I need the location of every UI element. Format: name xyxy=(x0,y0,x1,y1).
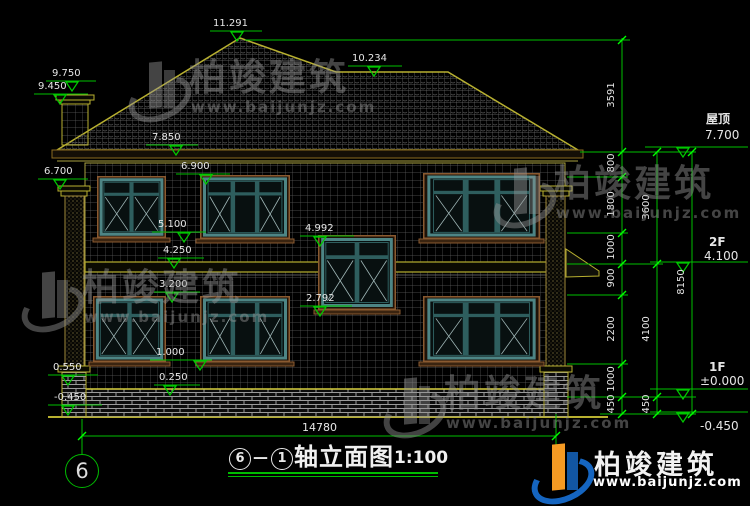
level-ridge: 10.234 xyxy=(352,54,387,64)
title-dash: — xyxy=(253,452,268,462)
title-underline-1 xyxy=(228,472,438,474)
baijun-logo-icon xyxy=(536,440,590,498)
level-peak: 11.291 xyxy=(213,19,248,29)
baijun-logo-icon xyxy=(26,268,80,326)
level-2f-window-sill: 5.100 xyxy=(158,220,187,230)
dim-8150: 8150 xyxy=(677,260,687,304)
value-basement: -0.450 xyxy=(700,421,739,431)
dim-2200: 2200 xyxy=(607,307,617,351)
axis-bubble-6: 6 xyxy=(65,454,99,488)
level-chimney-top: 9.750 xyxy=(52,69,81,79)
label-2f: 2F xyxy=(709,237,726,247)
dim-3591: 3591 xyxy=(607,73,617,117)
level-pedestal-top: 0.550 xyxy=(53,363,82,373)
label-1f: 1F xyxy=(709,362,726,372)
roof-fascia xyxy=(52,150,583,158)
level-stair-window-top: 4.992 xyxy=(305,224,334,234)
baijun-logo-icon xyxy=(498,164,552,222)
footer-url: www.baijunjz.com xyxy=(593,475,742,490)
level-ground-left: -0.450 xyxy=(54,393,86,403)
drawing-scale: 1:100 xyxy=(394,450,448,467)
drawing-title: 轴立面图 xyxy=(294,445,394,469)
value-2f: 4.100 xyxy=(704,251,738,261)
elevation-linework xyxy=(0,0,750,506)
level-stair-window-sill: 2.792 xyxy=(306,294,335,304)
level-plinth-top: 0.250 xyxy=(159,373,188,383)
title-axis-to: 1 xyxy=(271,448,293,470)
title-axis-from: 6 xyxy=(229,448,251,470)
level-eave: 7.850 xyxy=(152,133,181,143)
dim-4100: 4100 xyxy=(642,307,652,351)
baijun-logo-icon xyxy=(133,58,187,116)
label-roof: 屋顶 xyxy=(706,114,730,124)
window-2f-middle xyxy=(200,175,290,239)
level-chimney-shoulder: 9.450 xyxy=(38,82,67,92)
title-underline-2 xyxy=(228,476,438,477)
cad-elevation-drawing: 11.291 10.234 9.750 9.450 7.850 6.900 6.… xyxy=(0,0,750,506)
dim-450b: 450 xyxy=(642,382,652,426)
window-1f-right xyxy=(423,296,540,362)
level-floor-band: 4.250 xyxy=(163,246,192,256)
value-roof: 7.700 xyxy=(705,130,739,140)
side-roof-protrusion xyxy=(566,249,599,277)
level-1f-window-sill: 1.000 xyxy=(156,348,185,358)
level-2f-window-top: 6.900 xyxy=(181,162,210,172)
dim-900: 900 xyxy=(607,256,617,300)
dim-overall-width: 14780 xyxy=(302,423,337,433)
baijun-logo-icon xyxy=(388,374,442,432)
level-pilaster-top: 6.700 xyxy=(44,167,73,177)
value-1f: ±0.000 xyxy=(700,376,744,386)
window-2f-left xyxy=(97,176,166,238)
